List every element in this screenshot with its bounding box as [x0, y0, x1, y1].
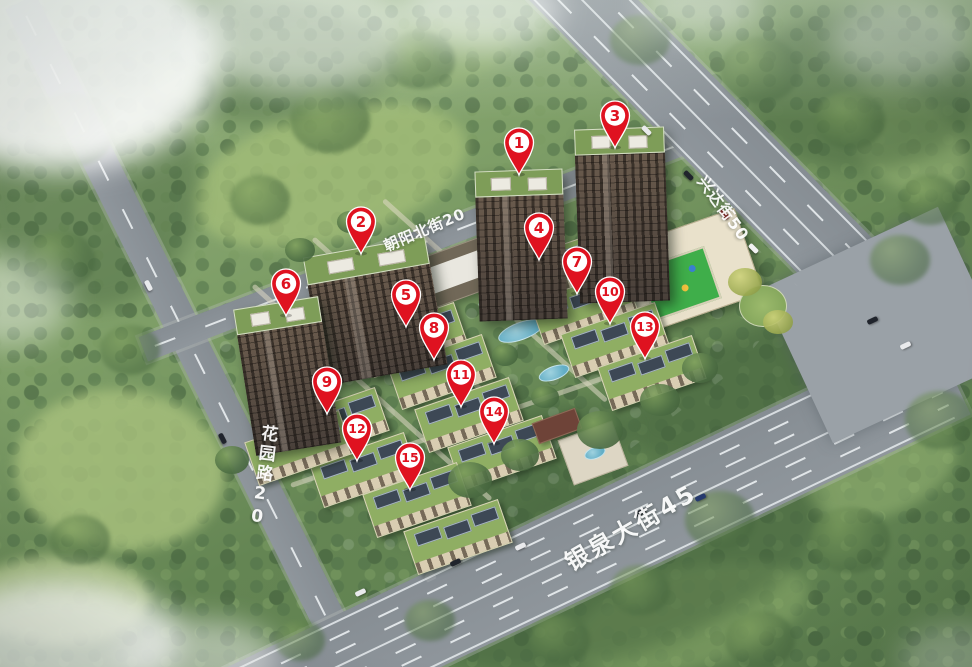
marker-number: 15 — [401, 450, 418, 465]
building-marker-15[interactable]: 15 — [393, 442, 427, 492]
building-marker-4[interactable]: 4 — [522, 212, 556, 262]
building-marker-12[interactable]: 12 — [340, 413, 374, 463]
aerial-site-plan: 朝阳北街20 兴达街50 花园路20 银泉大街45 12345678910111… — [0, 0, 972, 667]
marker-number: 1 — [514, 134, 524, 152]
building-marker-9[interactable]: 9 — [310, 366, 344, 416]
building-marker-14[interactable]: 14 — [477, 396, 511, 446]
building-marker-10[interactable]: 10 — [593, 276, 627, 326]
marker-number: 2 — [356, 213, 366, 231]
building-marker-2[interactable]: 2 — [344, 206, 378, 256]
marker-number: 10 — [601, 284, 619, 299]
marker-number: 8 — [429, 319, 439, 337]
marker-number: 13 — [636, 319, 653, 334]
marker-number: 7 — [572, 253, 582, 271]
building-marker-13[interactable]: 13 — [628, 311, 662, 361]
marker-number: 12 — [348, 421, 365, 436]
building-markers-layer: 123456789101112131415 — [0, 0, 972, 667]
building-marker-11[interactable]: 11 — [444, 359, 478, 409]
marker-number: 4 — [534, 219, 544, 237]
marker-number: 9 — [322, 373, 332, 391]
marker-number: 11 — [452, 367, 469, 382]
marker-number: 5 — [401, 286, 411, 304]
marker-number: 6 — [281, 275, 291, 293]
marker-number: 14 — [485, 404, 503, 419]
marker-number: 3 — [610, 107, 620, 125]
building-marker-6[interactable]: 6 — [269, 268, 303, 318]
building-marker-7[interactable]: 7 — [560, 246, 594, 296]
building-marker-1[interactable]: 1 — [502, 127, 536, 177]
building-marker-8[interactable]: 8 — [417, 312, 451, 362]
building-marker-3[interactable]: 3 — [598, 100, 632, 150]
